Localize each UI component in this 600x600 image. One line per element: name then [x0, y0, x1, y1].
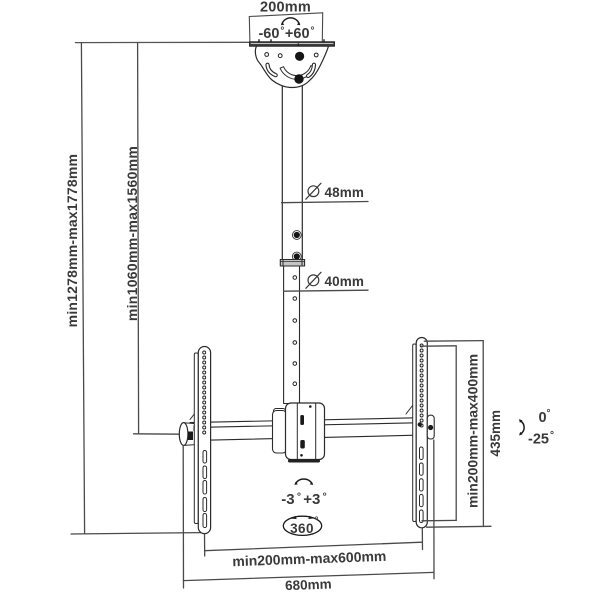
svg-text:48mm: 48mm: [325, 185, 364, 200]
svg-text:-60°+60°: -60°+60°: [258, 26, 314, 42]
svg-text:680mm: 680mm: [285, 576, 332, 593]
svg-text:min1060mm-max1560mm: min1060mm-max1560mm: [124, 146, 140, 321]
svg-text:0: 0: [539, 410, 547, 426]
svg-text:°: °: [315, 516, 319, 527]
svg-text:-3°+3°: -3°+3°: [281, 490, 326, 507]
svg-text:°: °: [547, 408, 551, 419]
svg-text:435mm: 435mm: [488, 410, 503, 457]
svg-text:40mm: 40mm: [325, 274, 364, 289]
svg-text:-25: -25: [528, 432, 549, 448]
svg-text:°: °: [550, 430, 554, 441]
svg-text:min1278mm-max1778mm: min1278mm-max1778mm: [64, 154, 80, 327]
svg-text:min200mm-max400mm: min200mm-max400mm: [465, 354, 481, 508]
svg-text:360: 360: [290, 521, 314, 536]
svg-text:200mm: 200mm: [260, 0, 311, 15]
